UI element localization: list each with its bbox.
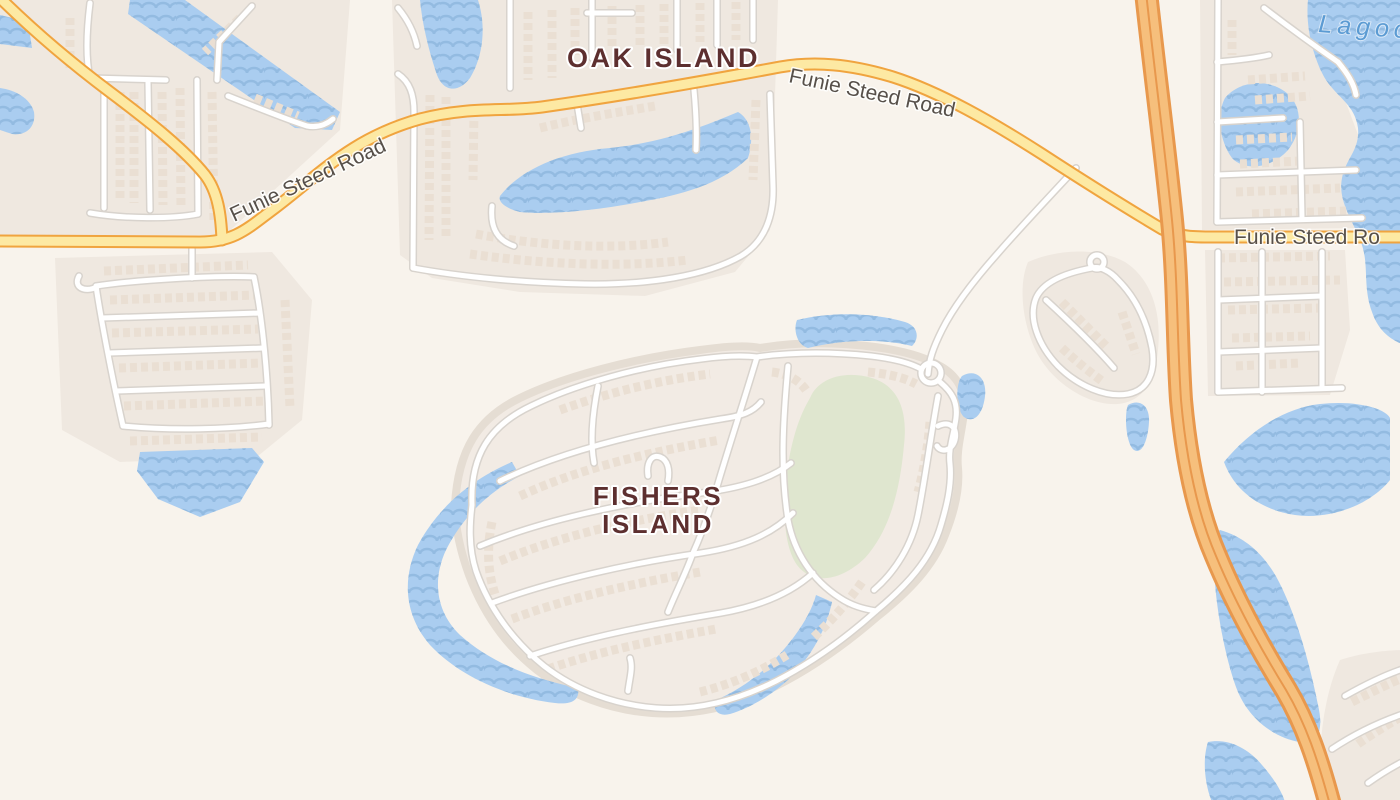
water-ladder-pond <box>137 448 264 517</box>
fishers-island-label-line1: FISHERS <box>593 481 723 511</box>
oak-island-label: OAK ISLAND <box>567 43 760 73</box>
water-highway-east <box>1224 403 1390 516</box>
water-pond-ne <box>1126 402 1149 451</box>
map-svg: Funie Steed Road Funie Steed Road Funie … <box>0 0 1400 800</box>
fishers-island-label-line2: ISLAND <box>602 509 714 539</box>
funie-steed-road-label-east: Funie Steed Ro <box>1234 226 1380 249</box>
map-canvas[interactable]: Funie Steed Road Funie Steed Road Funie … <box>0 0 1400 800</box>
water-highway-bottom <box>1205 741 1285 800</box>
water-island-east-pond <box>957 373 985 419</box>
